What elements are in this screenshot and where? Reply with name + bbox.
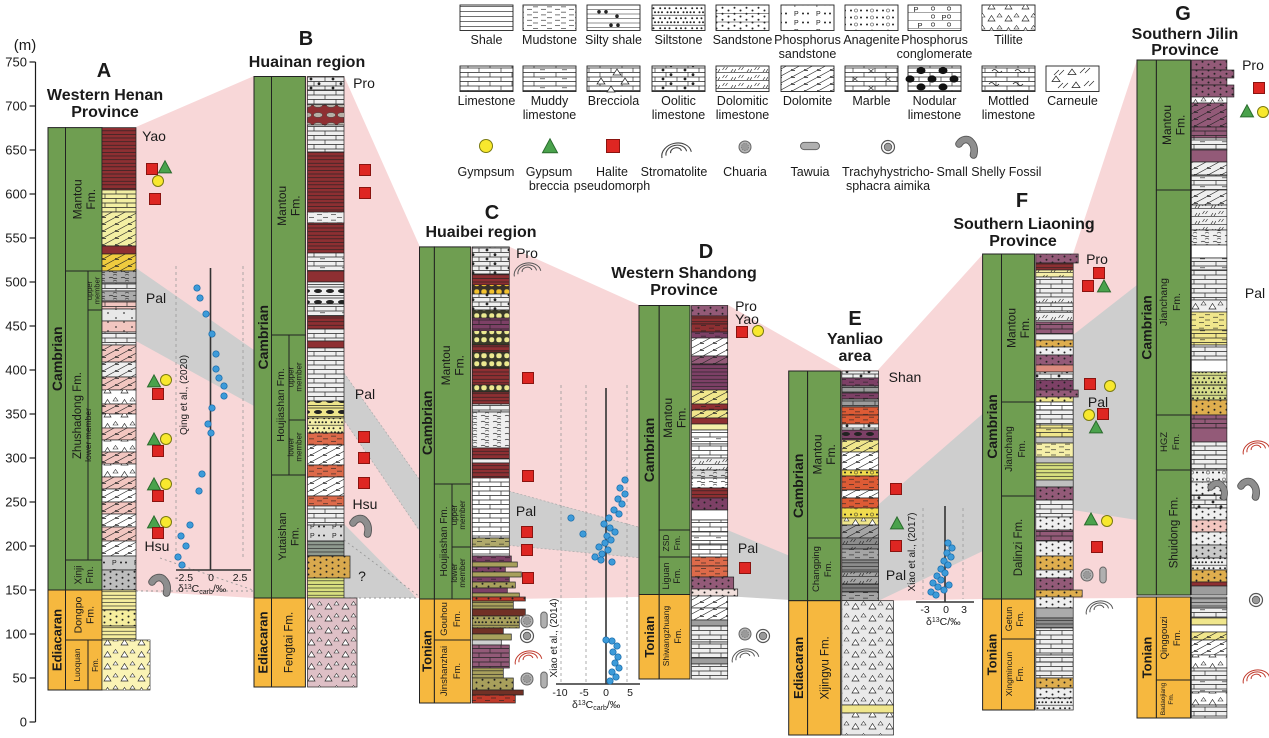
svg-text:Mantou: Mantou — [275, 186, 289, 226]
svg-text:Fm.: Fm. — [1018, 318, 1032, 339]
svg-text:member: member — [93, 276, 102, 304]
svg-text:Nodular: Nodular — [913, 94, 957, 108]
svg-text:δ13C/‰: δ13C/‰ — [926, 616, 961, 628]
svg-text:Xiao et al., (2014): Xiao et al., (2014) — [549, 599, 560, 678]
svg-text:Fm.: Fm. — [673, 628, 683, 644]
svg-text:Yao: Yao — [142, 128, 166, 144]
svg-text:Cambrian: Cambrian — [49, 327, 65, 392]
svg-text:B: B — [299, 28, 313, 50]
svg-text:C: C — [485, 202, 499, 224]
svg-text:Fm.: Fm. — [290, 527, 302, 546]
svg-text:Fm.: Fm. — [85, 566, 96, 583]
svg-text:Tawuia: Tawuia — [791, 165, 830, 179]
svg-text:Pro: Pro — [1086, 251, 1108, 267]
svg-text:Pro: Pro — [353, 75, 375, 91]
svg-text:Mantou: Mantou — [811, 434, 825, 474]
svg-text:conglomerate: conglomerate — [897, 47, 973, 61]
svg-text:400: 400 — [5, 363, 27, 378]
svg-text:Siltstone: Siltstone — [655, 33, 703, 47]
svg-text:Halite: Halite — [596, 165, 628, 179]
svg-text:Fm.: Fm. — [452, 611, 463, 627]
svg-text:limestone: limestone — [716, 108, 770, 122]
svg-text:Pal: Pal — [516, 503, 536, 519]
svg-text:limestone: limestone — [982, 108, 1036, 122]
svg-text:F: F — [1016, 190, 1028, 212]
svg-text:Luoquan: Luoquan — [72, 648, 82, 681]
svg-text:Houjiashan Fm.: Houjiashan Fm. — [439, 506, 450, 576]
svg-text:sandstone: sandstone — [779, 47, 837, 61]
svg-text:Qing et al., (2020): Qing et al., (2020) — [179, 355, 190, 435]
svg-text:0: 0 — [943, 604, 949, 616]
svg-text:Ediacaran: Ediacaran — [255, 611, 270, 673]
svg-text:Oolitic: Oolitic — [661, 94, 696, 108]
svg-text:300: 300 — [5, 451, 27, 466]
svg-text:Marble: Marble — [852, 94, 890, 108]
svg-text:250: 250 — [5, 495, 27, 510]
svg-text:Yanliao: Yanliao — [827, 331, 883, 348]
svg-text:Ediacaran: Ediacaran — [791, 637, 806, 699]
svg-text:Liguan: Liguan — [661, 562, 671, 589]
svg-text:Mudstone: Mudstone — [522, 33, 577, 47]
svg-text:(m): (m) — [14, 37, 37, 54]
svg-text:-10: -10 — [552, 687, 567, 699]
svg-text:area: area — [839, 348, 872, 365]
svg-text:Pro: Pro — [516, 245, 538, 261]
svg-text:500: 500 — [5, 275, 27, 290]
svg-text:5: 5 — [627, 687, 633, 699]
svg-text:50: 50 — [13, 671, 27, 686]
svg-text:member: member — [295, 432, 304, 462]
svg-text:Pal: Pal — [886, 567, 906, 583]
svg-text:Fm.: Fm. — [1171, 434, 1182, 450]
svg-text:Mantou: Mantou — [439, 345, 453, 385]
svg-text:Brecciola: Brecciola — [588, 94, 639, 108]
svg-text:Fm.: Fm. — [452, 663, 463, 679]
svg-text:Fengtai Fm.: Fengtai Fm. — [284, 612, 296, 673]
svg-text:Fm.: Fm. — [1017, 440, 1028, 457]
svg-text:Yutaishan: Yutaishan — [277, 512, 289, 560]
svg-text:Mantou: Mantou — [70, 179, 84, 219]
svg-text:breccia: breccia — [529, 179, 569, 193]
svg-text:Dalinzi Fm.: Dalinzi Fm. — [1013, 519, 1025, 577]
svg-text:Shuidong Fm.: Shuidong Fm. — [1169, 497, 1181, 569]
svg-text:Pal: Pal — [738, 540, 758, 556]
svg-text:Fm.: Fm. — [453, 355, 467, 376]
svg-text:Fm.: Fm. — [823, 561, 834, 577]
svg-text:Western Henan: Western Henan — [47, 87, 163, 104]
svg-text:-3: -3 — [920, 604, 929, 616]
svg-text:lower member: lower member — [83, 408, 93, 462]
svg-text:Tillite: Tillite — [994, 33, 1023, 47]
svg-text:Cambrian: Cambrian — [790, 454, 806, 519]
svg-text:Mottled: Mottled — [988, 94, 1029, 108]
svg-text:Small Shelly Fossil: Small Shelly Fossil — [937, 165, 1042, 179]
svg-text:750: 750 — [5, 55, 27, 70]
svg-text:-5: -5 — [579, 687, 588, 699]
svg-text:Fm.: Fm. — [672, 536, 682, 551]
svg-text:Western Shandong: Western Shandong — [611, 265, 757, 282]
svg-text:Hsu: Hsu — [353, 496, 378, 512]
svg-text:Fm.: Fm. — [1174, 115, 1188, 136]
svg-text:Dolomitic: Dolomitic — [717, 94, 768, 108]
svg-text:350: 350 — [5, 407, 27, 422]
svg-text:Fm.: Fm. — [84, 189, 98, 210]
svg-text:Pro: Pro — [1242, 57, 1264, 73]
svg-text:650: 650 — [5, 143, 27, 158]
svg-text:150: 150 — [5, 583, 27, 598]
svg-text:Tonian: Tonian — [420, 630, 435, 672]
svg-text:P: P — [913, 5, 918, 14]
svg-text:Fm.: Fm. — [824, 444, 838, 465]
svg-text:P: P — [917, 21, 922, 30]
svg-text:P: P — [941, 13, 946, 22]
svg-text:Gouhou: Gouhou — [439, 602, 450, 636]
svg-text:Cambrian: Cambrian — [641, 418, 657, 483]
svg-text:Southern Jilin: Southern Jilin — [1132, 26, 1239, 43]
svg-text:Ediacaran: Ediacaran — [49, 609, 64, 671]
svg-text:Cambrian: Cambrian — [984, 394, 1000, 459]
svg-text:Houjiashan Fm.: Houjiashan Fm. — [275, 368, 287, 442]
svg-text:Carneule: Carneule — [1047, 94, 1098, 108]
svg-text:Mantou: Mantou — [661, 398, 675, 438]
svg-text:Province: Province — [989, 233, 1057, 250]
svg-text:Gympsum: Gympsum — [458, 165, 515, 179]
svg-text:?: ? — [358, 568, 366, 584]
svg-text:E: E — [848, 308, 861, 330]
svg-text:Fm.: Fm. — [1172, 630, 1183, 646]
svg-text:HGZ: HGZ — [1159, 432, 1170, 452]
svg-text:Dolomite: Dolomite — [783, 94, 832, 108]
svg-text:ZSD: ZSD — [661, 535, 671, 552]
svg-text:Cambrian: Cambrian — [1139, 295, 1155, 360]
svg-text:Mantou: Mantou — [1005, 308, 1019, 348]
svg-text:Fm.: Fm. — [1015, 666, 1025, 682]
svg-text:Jinshanzhai: Jinshanzhai — [439, 646, 450, 696]
svg-text:Fm.: Fm. — [1168, 693, 1175, 704]
svg-text:limestone: limestone — [908, 108, 962, 122]
svg-text:Cambrian: Cambrian — [419, 391, 435, 456]
svg-text:Fm.: Fm. — [675, 407, 689, 428]
svg-text:Cambrian: Cambrian — [255, 305, 271, 370]
svg-text:A: A — [97, 60, 111, 82]
svg-text:Limestone: Limestone — [458, 94, 516, 108]
svg-text:Stromatolite: Stromatolite — [641, 165, 708, 179]
svg-text:member: member — [458, 558, 467, 588]
svg-text:100: 100 — [5, 627, 27, 642]
svg-text:pseudomorph: pseudomorph — [574, 179, 650, 193]
svg-text:Pal: Pal — [1245, 285, 1265, 301]
svg-text:Getun: Getun — [1004, 607, 1014, 632]
svg-text:Silty shale: Silty shale — [585, 33, 642, 47]
svg-text:Pal: Pal — [1088, 394, 1108, 410]
svg-text:Xijingyu Fm.: Xijingyu Fm. — [819, 636, 831, 699]
svg-text:Fm.: Fm. — [1171, 293, 1183, 311]
svg-text:550: 550 — [5, 231, 27, 246]
svg-text:limestone: limestone — [652, 108, 706, 122]
svg-text:Fm.: Fm. — [91, 658, 100, 672]
svg-text:Shale: Shale — [471, 33, 503, 47]
svg-text:0: 0 — [20, 715, 27, 730]
svg-text:3: 3 — [961, 604, 967, 616]
svg-text:Pal: Pal — [355, 386, 375, 402]
svg-text:member: member — [458, 500, 467, 530]
svg-text:Mantou: Mantou — [1160, 105, 1174, 145]
svg-text:0: 0 — [603, 687, 609, 699]
svg-text:Fm.: Fm. — [289, 195, 303, 216]
svg-text:Province: Province — [650, 282, 718, 299]
svg-text:Province: Province — [71, 104, 139, 121]
svg-text:Province: Province — [1151, 42, 1219, 59]
svg-text:Sandstone: Sandstone — [713, 33, 773, 47]
svg-text:Huainan region: Huainan region — [249, 54, 365, 71]
svg-text:Tonian: Tonian — [642, 616, 657, 658]
svg-text:Dongpo: Dongpo — [73, 596, 85, 633]
svg-text:700: 700 — [5, 99, 27, 114]
svg-text:Trachyhystricho-: Trachyhystricho- — [842, 165, 934, 179]
svg-text:Phosphorus: Phosphorus — [774, 33, 841, 47]
svg-text:Muddy: Muddy — [531, 94, 569, 108]
svg-text:Shiwangzhuang: Shiwangzhuang — [661, 605, 671, 666]
svg-text:Badaojiang: Badaojiang — [1160, 682, 1167, 715]
svg-text:Xingmincun: Xingmincun — [1004, 652, 1014, 697]
svg-text:Fm.: Fm. — [672, 568, 682, 584]
svg-text:Qinggouzi: Qinggouzi — [1159, 617, 1170, 660]
svg-text:600: 600 — [5, 187, 27, 202]
svg-text:member: member — [295, 362, 304, 392]
svg-text:limestone: limestone — [523, 108, 577, 122]
svg-text:Shan: Shan — [889, 369, 922, 385]
svg-text:Hsu: Hsu — [145, 538, 170, 554]
svg-text:Tonian: Tonian — [1139, 637, 1154, 679]
svg-text:Gypsum: Gypsum — [526, 165, 573, 179]
svg-text:Yao: Yao — [735, 311, 759, 327]
svg-text:sphacra aimika: sphacra aimika — [846, 179, 930, 193]
svg-text:200: 200 — [5, 539, 27, 554]
svg-text:Southern Liaoning: Southern Liaoning — [953, 216, 1094, 233]
svg-text:450: 450 — [5, 319, 27, 334]
svg-text:G: G — [1175, 3, 1191, 25]
svg-text:Jianchang: Jianchang — [1004, 426, 1015, 472]
svg-text:Chuaria: Chuaria — [723, 165, 767, 179]
svg-text:Jianchang: Jianchang — [1158, 278, 1170, 326]
svg-text:Changping: Changping — [811, 546, 822, 592]
svg-text:Pal: Pal — [146, 290, 166, 306]
svg-text:Huaibei region: Huaibei region — [425, 224, 536, 241]
svg-text:Phosphorus: Phosphorus — [901, 33, 968, 47]
svg-text:Xiao et al., (2017): Xiao et al., (2017) — [907, 513, 918, 592]
svg-text:2.5: 2.5 — [233, 572, 248, 584]
svg-text:Fm.: Fm. — [85, 606, 97, 624]
svg-text:Anagenite: Anagenite — [843, 33, 899, 47]
svg-text:Fm.: Fm. — [1015, 611, 1025, 627]
svg-text:Xinji: Xinji — [74, 566, 85, 585]
svg-text:Tonian: Tonian — [985, 634, 1000, 676]
svg-text:D: D — [699, 241, 713, 263]
